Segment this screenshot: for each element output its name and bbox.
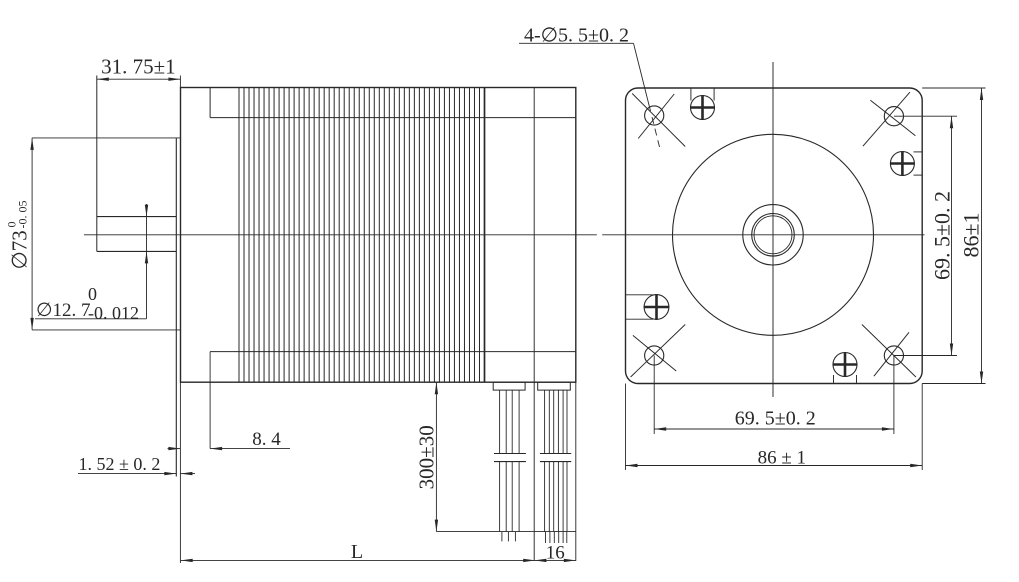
svg-text:-0. 05: -0. 05 bbox=[16, 201, 30, 229]
svg-text:0: 0 bbox=[88, 284, 97, 304]
svg-text:31. 75±1: 31. 75±1 bbox=[101, 55, 176, 79]
svg-text:16: 16 bbox=[546, 542, 565, 563]
svg-text:69. 5±0. 2: 69. 5±0. 2 bbox=[930, 191, 955, 280]
svg-text:8. 4: 8. 4 bbox=[252, 429, 281, 450]
svg-text:86±1: 86±1 bbox=[959, 212, 984, 257]
svg-text:∅73: ∅73 bbox=[8, 230, 32, 269]
svg-text:86 ± 1: 86 ± 1 bbox=[758, 448, 806, 469]
svg-text:∅12. 7: ∅12. 7 bbox=[36, 300, 91, 321]
svg-text:L: L bbox=[351, 541, 363, 563]
svg-text:-0. 012: -0. 012 bbox=[88, 303, 139, 323]
svg-text:69. 5±0. 2: 69. 5±0. 2 bbox=[735, 407, 816, 429]
svg-text:300±30: 300±30 bbox=[415, 425, 439, 489]
svg-text:1. 52 ± 0. 2: 1. 52 ± 0. 2 bbox=[79, 454, 161, 474]
